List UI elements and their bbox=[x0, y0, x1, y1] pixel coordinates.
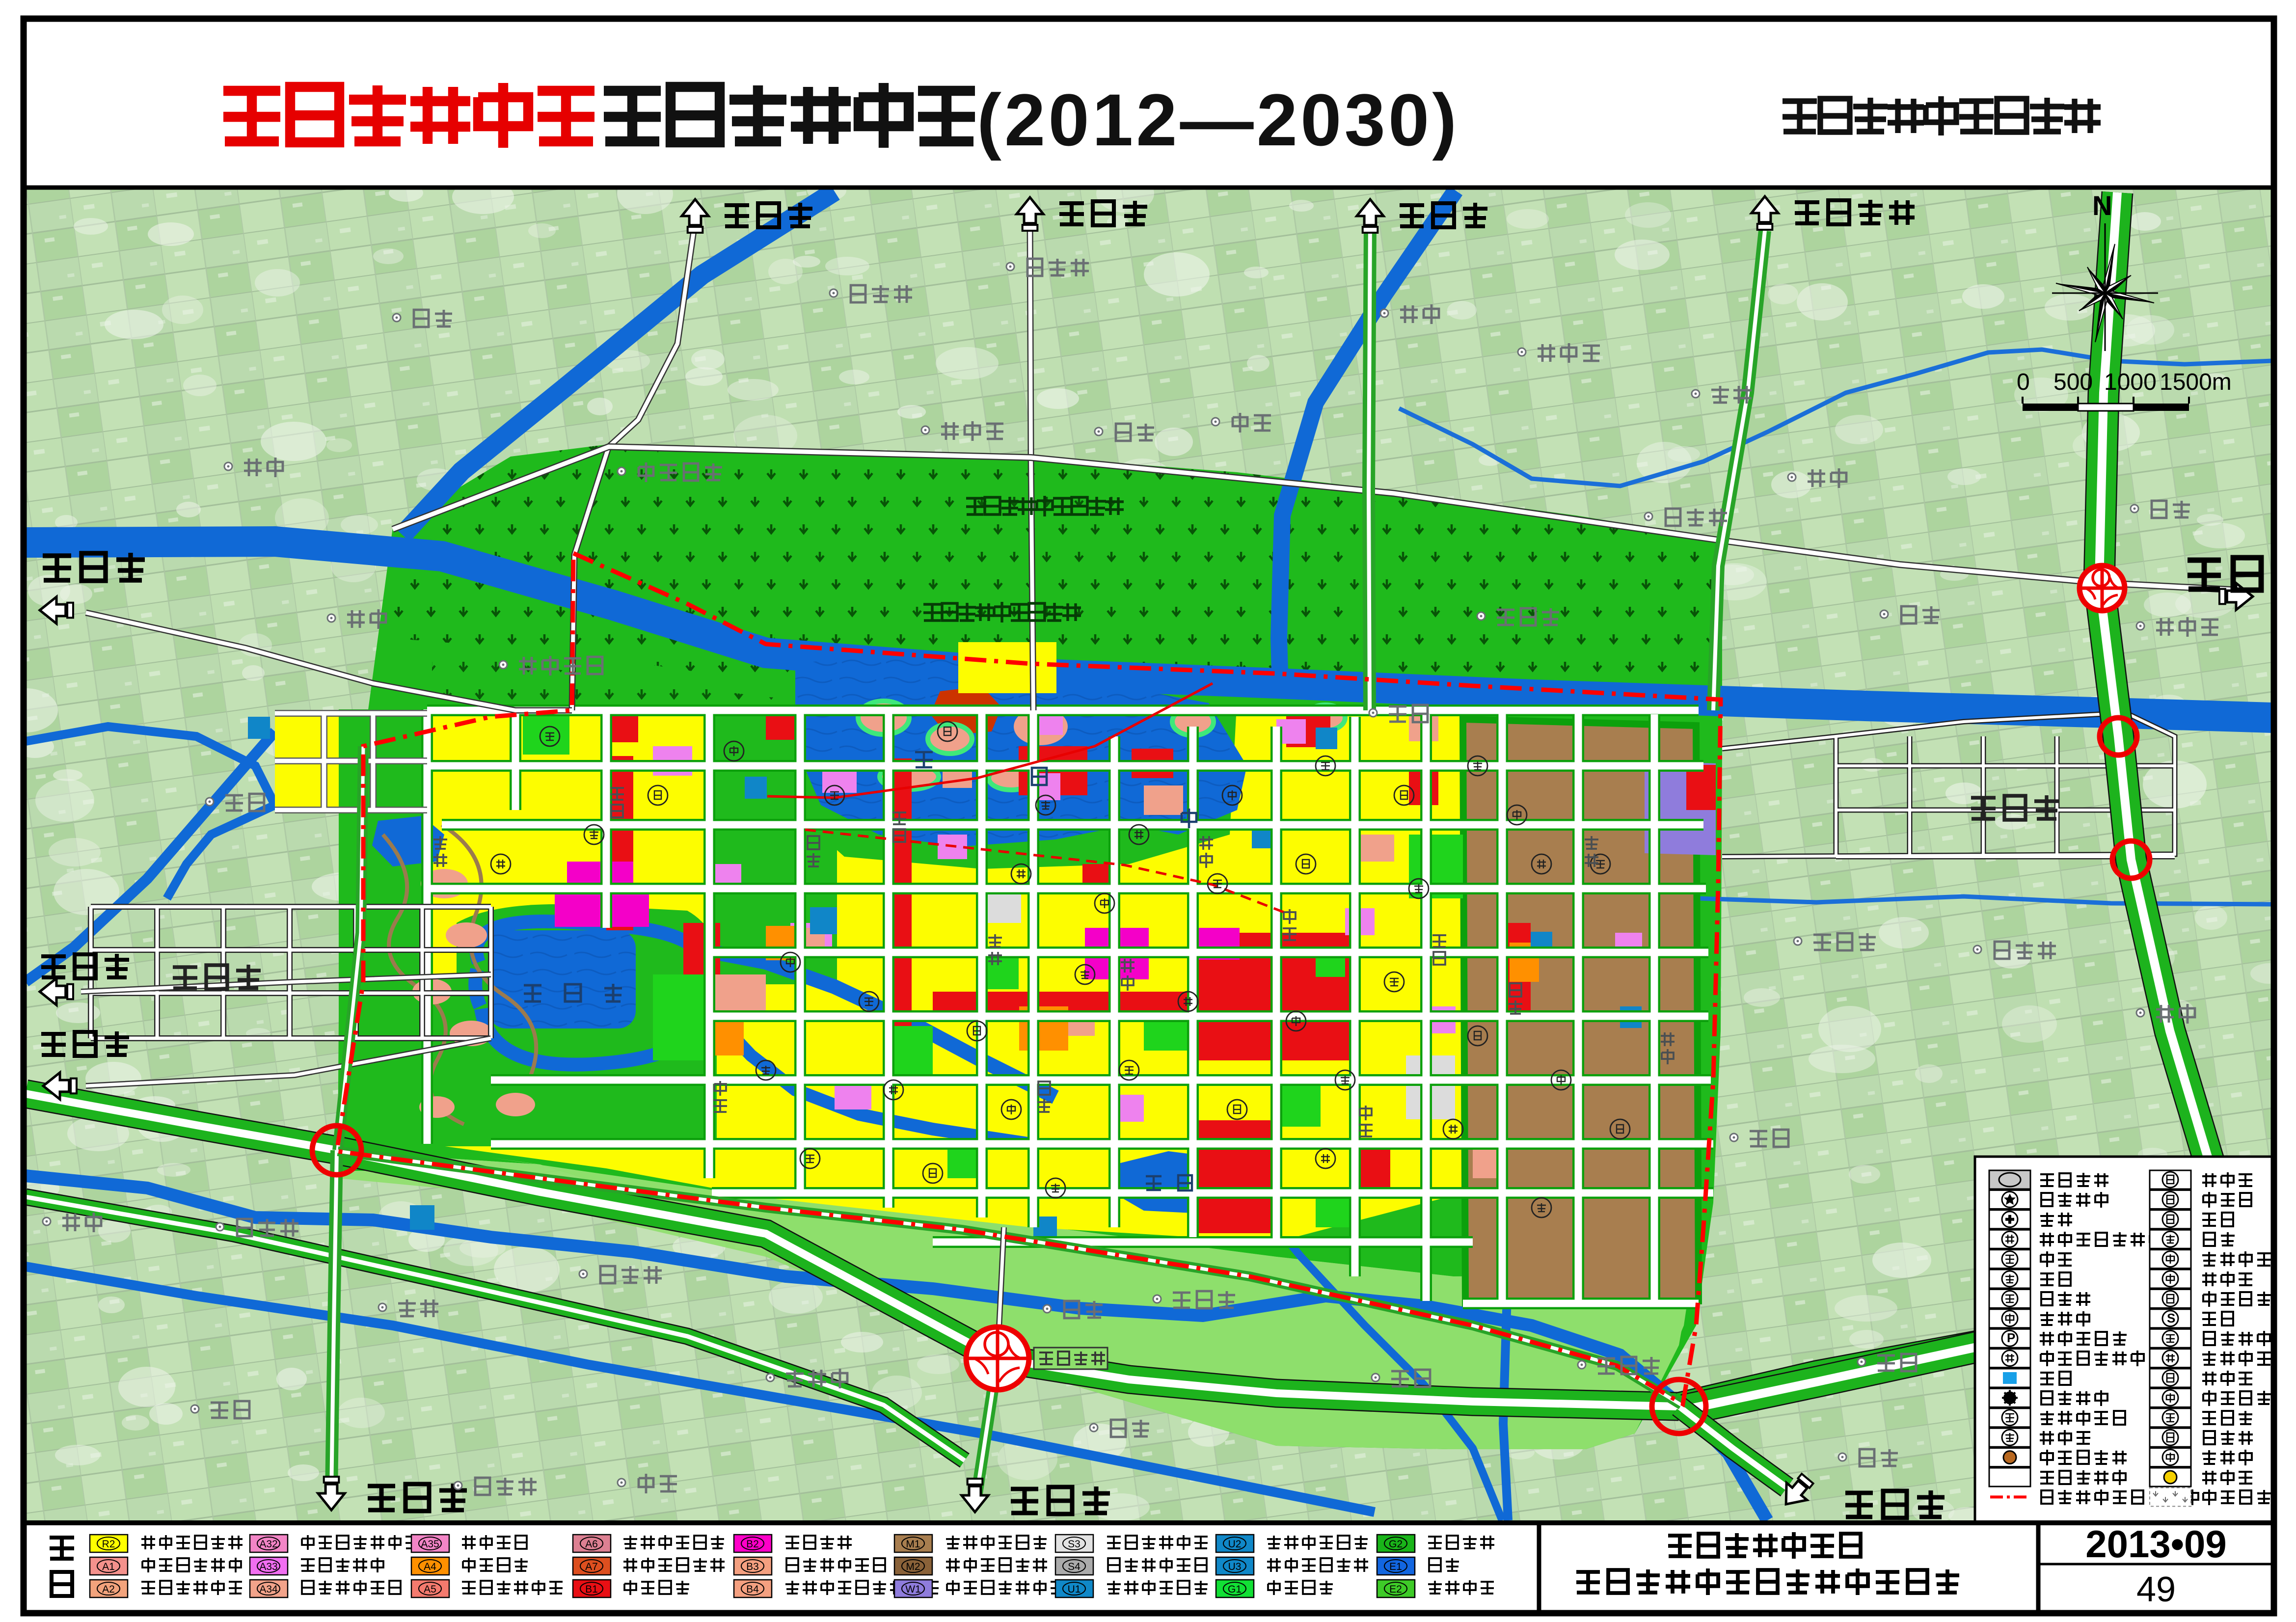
svg-text:M2: M2 bbox=[906, 1561, 920, 1572]
svg-text:2013•09: 2013•09 bbox=[2085, 1522, 2227, 1566]
svg-text:B1: B1 bbox=[585, 1584, 598, 1595]
svg-text:P: P bbox=[2007, 1330, 2015, 1345]
svg-text:A2: A2 bbox=[102, 1584, 115, 1595]
svg-text:B4: B4 bbox=[746, 1584, 759, 1595]
svg-text:N: N bbox=[2092, 190, 2112, 221]
svg-text:M1: M1 bbox=[906, 1539, 920, 1550]
svg-text:U3: U3 bbox=[1228, 1561, 1242, 1572]
svg-text:A33: A33 bbox=[259, 1561, 277, 1572]
svg-text:A32: A32 bbox=[259, 1539, 277, 1550]
svg-text:E1: E1 bbox=[1389, 1561, 1402, 1572]
svg-text:B3: B3 bbox=[746, 1561, 759, 1572]
svg-text:U2: U2 bbox=[1228, 1539, 1242, 1550]
svg-text:500: 500 bbox=[2053, 369, 2093, 395]
svg-text:1500m: 1500m bbox=[2160, 369, 2232, 395]
svg-text:A35: A35 bbox=[421, 1539, 439, 1550]
svg-text:S3: S3 bbox=[1068, 1539, 1080, 1550]
svg-text:B2: B2 bbox=[746, 1539, 759, 1550]
svg-text:1000: 1000 bbox=[2104, 369, 2157, 395]
svg-text:A6: A6 bbox=[585, 1539, 598, 1550]
svg-text:49: 49 bbox=[2136, 1570, 2176, 1609]
svg-text:0: 0 bbox=[2017, 369, 2030, 395]
svg-text:G1: G1 bbox=[1228, 1584, 1242, 1595]
svg-text:U1: U1 bbox=[1068, 1584, 1081, 1595]
svg-text:(2012—2030): (2012—2030) bbox=[977, 79, 1459, 161]
svg-text:A7: A7 bbox=[585, 1561, 598, 1572]
svg-text:R2: R2 bbox=[102, 1539, 115, 1550]
svg-text:E2: E2 bbox=[1389, 1584, 1402, 1595]
svg-text:W1: W1 bbox=[905, 1584, 921, 1595]
svg-text:S4: S4 bbox=[1068, 1561, 1080, 1572]
svg-text:A5: A5 bbox=[424, 1584, 436, 1595]
svg-text:S: S bbox=[2167, 1311, 2175, 1325]
svg-text:G2: G2 bbox=[1389, 1539, 1403, 1550]
svg-text:A1: A1 bbox=[102, 1561, 115, 1572]
svg-text:A34: A34 bbox=[259, 1584, 278, 1595]
svg-text:A4: A4 bbox=[424, 1561, 436, 1572]
